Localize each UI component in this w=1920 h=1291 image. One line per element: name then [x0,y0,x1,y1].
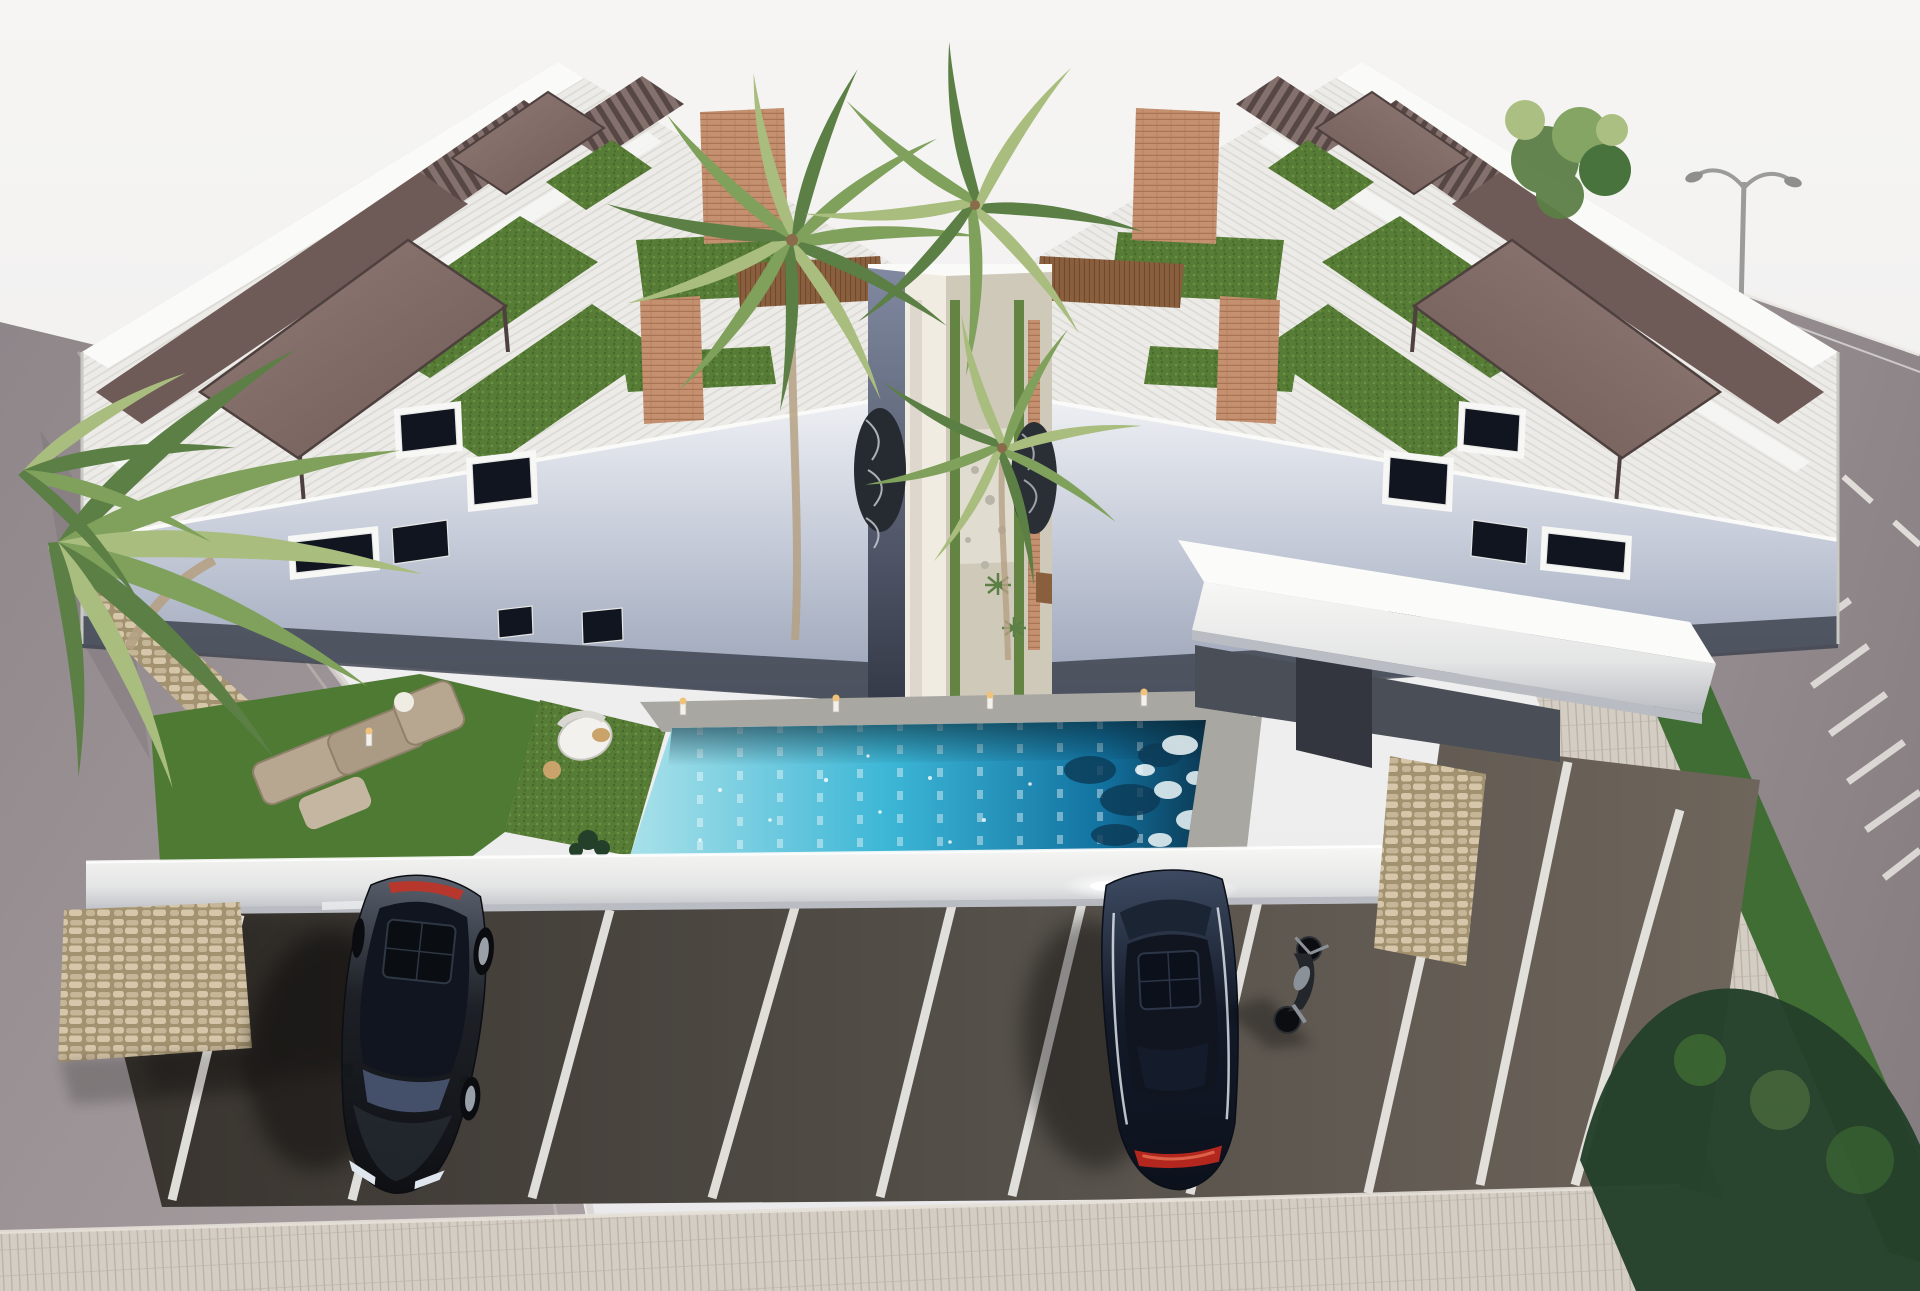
side-table [543,761,561,779]
architectural-render: Aerial 3D render — twin white apartment … [0,0,1920,1291]
stone-pillar-right [1374,756,1486,966]
stone-pillar-left [58,902,252,1062]
side-mirror [342,1063,353,1078]
pool-terrace [630,686,1302,859]
courtyard-door [1036,572,1052,604]
garden-light [366,728,373,747]
brick-walkway [640,296,704,424]
central-courtyard [854,264,1057,706]
pillow [394,692,414,712]
render-canvas: Aerial 3D render — twin white apartment … [0,0,1920,1291]
